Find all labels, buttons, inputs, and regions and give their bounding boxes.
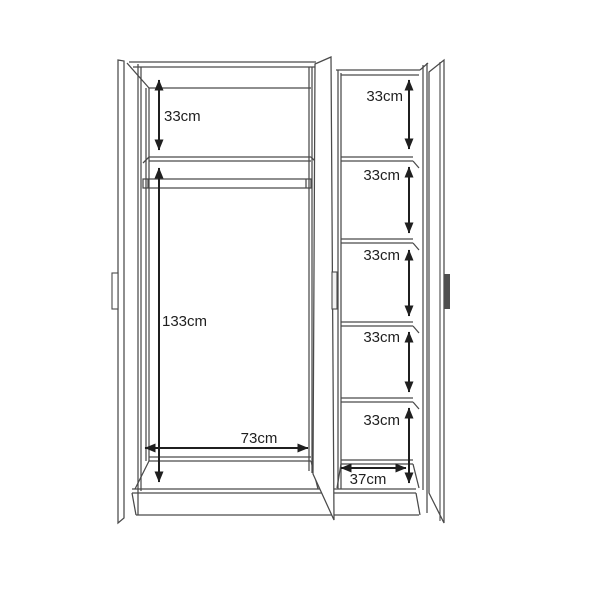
dimension-label-right-4: 33cm	[363, 329, 400, 346]
dimension-annotations: 33cm 133cm 73cm 33cm 33cm 33cm 33cm	[145, 80, 409, 488]
left-door-panel	[118, 60, 124, 523]
middle-door-handle	[332, 272, 337, 309]
plinth	[132, 493, 420, 515]
dimension-left-top-compartment: 33cm	[159, 80, 201, 150]
right-side-panel	[423, 63, 427, 513]
dimension-left-hanging-height: 133cm	[159, 168, 207, 482]
right-door	[429, 60, 450, 523]
left-inner-wall	[146, 88, 149, 461]
left-top-shelf	[143, 157, 317, 163]
right-door-handle	[444, 274, 450, 309]
dimension-right-compartment-3: 33cm	[363, 247, 409, 316]
dimension-label-right-width: 37cm	[350, 471, 387, 488]
front-bottom-edge	[132, 489, 416, 493]
dimension-right-section-width: 37cm	[341, 468, 406, 488]
top-edge-left	[129, 62, 316, 67]
dimension-label-right-2: 33cm	[363, 167, 400, 184]
left-side-panel	[138, 64, 141, 515]
hanging-rail	[143, 179, 311, 188]
diagram-canvas: 33cm 133cm 73cm 33cm 33cm 33cm 33cm	[0, 0, 600, 600]
dimension-label-hanging-height: 133cm	[162, 313, 207, 330]
dimension-left-section-width: 73cm	[145, 430, 308, 448]
dimension-right-compartment-4: 33cm	[363, 329, 409, 392]
centre-divider	[309, 67, 312, 473]
dimension-right-compartment-1: 33cm	[366, 80, 409, 149]
middle-door	[313, 57, 337, 520]
right-door-panel	[429, 60, 444, 523]
dimension-right-compartment-2: 33cm	[363, 167, 409, 233]
dimension-label-right-3: 33cm	[363, 247, 400, 264]
dimension-label-left-top: 33cm	[164, 108, 201, 125]
left-door	[112, 60, 124, 523]
dimension-label-left-width: 73cm	[241, 430, 278, 447]
right-section-left-wall	[338, 70, 341, 489]
dimension-label-right-1: 33cm	[366, 88, 403, 105]
right-shelves	[341, 157, 419, 409]
middle-door-panel	[313, 57, 334, 520]
left-floor	[135, 457, 318, 489]
right-shelf-4	[341, 398, 419, 409]
top-edge-right	[336, 63, 428, 70]
wardrobe-dimension-diagram: 33cm 133cm 73cm 33cm 33cm 33cm 33cm	[0, 0, 600, 600]
hanging-rail-end-caps	[148, 179, 306, 188]
left-door-handle	[112, 273, 118, 309]
dimension-label-right-5: 33cm	[363, 412, 400, 429]
